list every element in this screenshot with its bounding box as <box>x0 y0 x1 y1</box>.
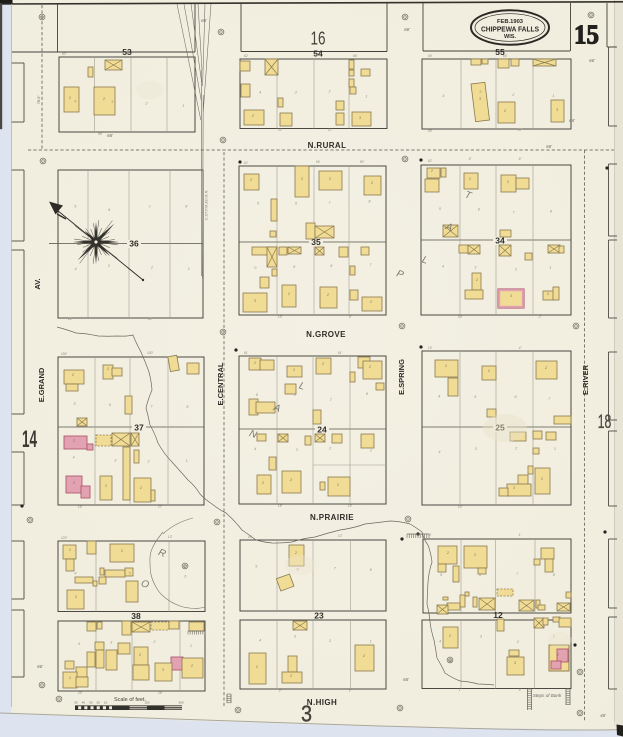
svg-text:2: 2 <box>328 177 331 181</box>
svg-text:2: 2 <box>289 674 292 678</box>
svg-text:4: 4 <box>442 94 444 98</box>
svg-text:2: 2 <box>292 368 295 372</box>
svg-text:36: 36 <box>129 239 139 249</box>
svg-text:2: 2 <box>138 653 141 657</box>
svg-text:26': 26' <box>157 691 163 695</box>
svg-text:2: 2 <box>336 483 339 487</box>
svg-text:38: 38 <box>131 611 141 621</box>
svg-text:80': 80' <box>360 160 365 164</box>
svg-text:2: 2 <box>506 180 509 184</box>
svg-text:2: 2 <box>139 486 142 490</box>
svg-text:2: 2 <box>370 181 373 185</box>
svg-text:10': 10' <box>348 504 353 508</box>
svg-text:2: 2 <box>261 481 264 485</box>
svg-text:2: 2 <box>540 477 543 481</box>
svg-text:C.ST.P.M.&O.R.R.: C.ST.P.M.&O.R.R. <box>205 190 209 221</box>
svg-text:2: 2 <box>251 114 254 118</box>
svg-text:2: 2 <box>326 293 329 297</box>
svg-text:2: 2 <box>368 365 371 369</box>
svg-text:2: 2 <box>444 364 447 368</box>
svg-text:100': 100' <box>61 352 67 356</box>
svg-text:2: 2 <box>468 177 471 181</box>
svg-text:61': 61' <box>244 351 249 355</box>
svg-text:40': 40' <box>148 317 153 321</box>
svg-text:1: 1 <box>370 449 372 453</box>
svg-text:62': 62' <box>244 54 249 58</box>
svg-text:CHIPPEWA FALLS: CHIPPEWA FALLS <box>481 25 539 34</box>
svg-text:AV.: AV. <box>33 278 42 289</box>
svg-text:2: 2 <box>448 634 451 638</box>
svg-text:30': 30' <box>458 315 463 319</box>
svg-text:24: 24 <box>317 425 327 435</box>
svg-text:66': 66' <box>503 54 508 58</box>
svg-text:40: 40 <box>82 701 86 705</box>
svg-text:10': 10' <box>458 505 463 509</box>
svg-text:2: 2 <box>473 553 476 557</box>
svg-text:Scale of feet.: Scale of feet. <box>114 697 147 703</box>
svg-text:60': 60' <box>428 54 433 58</box>
svg-text:2: 2 <box>369 300 372 304</box>
svg-text:4: 4 <box>442 265 444 269</box>
svg-text:3: 3 <box>359 116 361 120</box>
svg-text:14: 14 <box>22 426 37 453</box>
svg-text:N.GROVE: N.GROVE <box>306 330 346 339</box>
svg-text:4: 4 <box>73 456 75 460</box>
svg-text:48: 48 <box>448 659 452 663</box>
svg-text:2: 2 <box>74 595 77 599</box>
svg-text:4: 4 <box>74 100 76 104</box>
svg-text:3: 3 <box>510 294 512 298</box>
svg-text:2: 2 <box>68 96 71 100</box>
svg-text:66': 66' <box>314 53 319 57</box>
svg-text:47: 47 <box>183 565 187 569</box>
svg-text:2: 2 <box>253 361 256 365</box>
svg-text:2': 2' <box>538 315 542 319</box>
svg-text:N.RURAL: N.RURAL <box>308 141 347 150</box>
svg-text:1: 1 <box>182 104 184 108</box>
svg-text:43': 43' <box>248 535 253 539</box>
svg-text:66': 66' <box>98 132 103 136</box>
svg-text:1: 1 <box>554 447 556 451</box>
svg-text:WIS.: WIS. <box>504 34 517 40</box>
svg-text:66': 66' <box>589 58 595 63</box>
svg-text:150: 150 <box>144 701 149 705</box>
svg-text:2: 2 <box>287 292 290 296</box>
svg-text:8': 8' <box>519 157 522 161</box>
svg-text:10': 10' <box>428 346 433 350</box>
svg-text:1: 1 <box>188 267 190 271</box>
svg-text:3: 3 <box>162 668 164 672</box>
svg-text:66': 66' <box>403 677 409 682</box>
svg-text:4: 4 <box>254 447 256 451</box>
svg-text:2: 2 <box>68 548 71 552</box>
svg-text:4': 4' <box>519 346 522 350</box>
svg-text:2: 2 <box>544 366 547 370</box>
svg-text:2': 2' <box>278 689 282 693</box>
svg-text:1: 1 <box>190 644 192 648</box>
svg-text:10': 10' <box>278 315 283 319</box>
svg-text:2: 2 <box>72 481 75 485</box>
svg-text:13': 13' <box>338 534 343 538</box>
svg-text:66': 66' <box>353 54 358 58</box>
svg-text:2: 2 <box>321 362 324 366</box>
svg-text:3: 3 <box>301 701 312 727</box>
svg-text:2: 2 <box>255 665 258 669</box>
svg-text:16: 16 <box>311 29 326 49</box>
svg-text:50: 50 <box>74 701 78 705</box>
svg-text:2: 2 <box>102 97 105 101</box>
svg-text:6': 6' <box>429 533 432 537</box>
svg-text:4: 4 <box>259 638 261 642</box>
svg-text:2: 2 <box>68 676 71 680</box>
svg-text:2: 2 <box>71 373 74 377</box>
svg-text:18: 18 <box>598 412 612 433</box>
svg-text:3: 3 <box>479 97 481 101</box>
svg-text:78.5': 78.5' <box>36 95 41 104</box>
svg-text:3: 3 <box>513 486 515 490</box>
svg-text:40': 40' <box>428 129 433 133</box>
svg-text:4: 4 <box>74 571 76 575</box>
svg-text:300: 300 <box>178 701 183 705</box>
svg-text:2: 2 <box>120 549 123 553</box>
svg-text:2: 2 <box>294 551 297 555</box>
svg-text:9': 9' <box>349 315 352 319</box>
svg-text:20': 20' <box>77 691 83 695</box>
svg-text:1': 1' <box>349 689 352 693</box>
svg-text:66': 66' <box>37 664 43 669</box>
svg-text:2: 2 <box>106 367 109 371</box>
svg-text:2: 2 <box>546 292 549 296</box>
svg-text:2: 2 <box>362 654 365 658</box>
svg-text:2: 2 <box>190 664 193 668</box>
svg-text:E.GRAND: E.GRAND <box>37 367 46 402</box>
svg-text:66': 66' <box>107 133 113 138</box>
svg-text:N.PRAIRIE: N.PRAIRIE <box>310 513 354 522</box>
svg-text:2: 2 <box>446 551 449 555</box>
svg-text:3: 3 <box>514 661 516 665</box>
svg-text:66': 66' <box>404 27 410 32</box>
svg-text:E.CENTRAL: E.CENTRAL <box>216 362 225 405</box>
svg-text:66': 66' <box>316 160 321 164</box>
svg-text:18': 18' <box>278 504 283 508</box>
svg-text:2: 2 <box>487 369 490 373</box>
svg-text:30: 30 <box>89 701 93 705</box>
svg-text:100': 100' <box>147 351 153 355</box>
svg-text:66': 66' <box>569 118 575 123</box>
svg-text:62': 62' <box>428 159 433 163</box>
svg-text:16': 16' <box>78 505 83 509</box>
svg-text:4: 4 <box>438 394 440 398</box>
svg-text:E.SPRING: E.SPRING <box>397 359 406 395</box>
svg-text:62': 62' <box>62 52 67 56</box>
svg-text:2: 2 <box>475 278 478 282</box>
svg-text:47': 47' <box>518 128 523 132</box>
svg-text:8': 8' <box>519 688 522 692</box>
svg-text:2: 2 <box>289 478 292 482</box>
svg-text:1: 1 <box>370 640 372 644</box>
svg-text:13': 13' <box>168 535 173 539</box>
svg-text:20: 20 <box>97 701 101 705</box>
svg-text:2: 2 <box>503 109 506 113</box>
svg-text:66': 66' <box>201 18 207 23</box>
svg-text:1: 1 <box>186 459 188 463</box>
svg-text:18': 18' <box>68 317 73 321</box>
svg-text:66': 66' <box>546 144 552 149</box>
svg-text:2: 2 <box>72 439 75 443</box>
svg-text:4: 4 <box>259 90 261 94</box>
svg-text:46': 46' <box>600 713 606 718</box>
svg-text:8': 8' <box>469 157 472 161</box>
svg-text:E.RIVER: E.RIVER <box>581 364 590 395</box>
svg-text:1': 1' <box>459 688 462 692</box>
svg-text:66': 66' <box>128 52 133 56</box>
svg-text:2: 2 <box>249 178 252 182</box>
svg-text:2: 2 <box>556 653 559 657</box>
svg-text:15: 15 <box>574 20 599 50</box>
svg-text:10: 10 <box>104 701 108 705</box>
svg-text:4: 4 <box>75 267 77 271</box>
svg-text:1': 1' <box>519 533 522 537</box>
svg-text:37: 37 <box>134 423 144 433</box>
svg-text:Steps of Bank: Steps of Bank <box>533 693 562 698</box>
svg-text:2: 2 <box>430 169 433 173</box>
svg-text:1: 1 <box>549 266 551 270</box>
svg-text:1: 1 <box>365 95 367 99</box>
svg-text:2: 2 <box>300 177 303 181</box>
svg-text:12': 12' <box>328 128 333 132</box>
svg-text:27': 27' <box>157 505 163 509</box>
svg-text:1: 1 <box>552 94 554 98</box>
svg-text:33': 33' <box>278 128 283 132</box>
svg-text:12: 12 <box>493 610 503 620</box>
svg-text:3: 3 <box>254 299 256 303</box>
svg-text:2: 2 <box>104 484 107 488</box>
svg-text:23: 23 <box>314 611 324 621</box>
svg-text:120': 120' <box>61 536 67 540</box>
svg-text:61': 61' <box>338 351 343 355</box>
svg-text:4: 4 <box>438 450 440 454</box>
svg-text:62': 62' <box>244 161 249 165</box>
svg-text:4: 4 <box>78 642 80 646</box>
svg-text:4: 4 <box>439 640 441 644</box>
svg-text:3: 3 <box>556 108 558 112</box>
